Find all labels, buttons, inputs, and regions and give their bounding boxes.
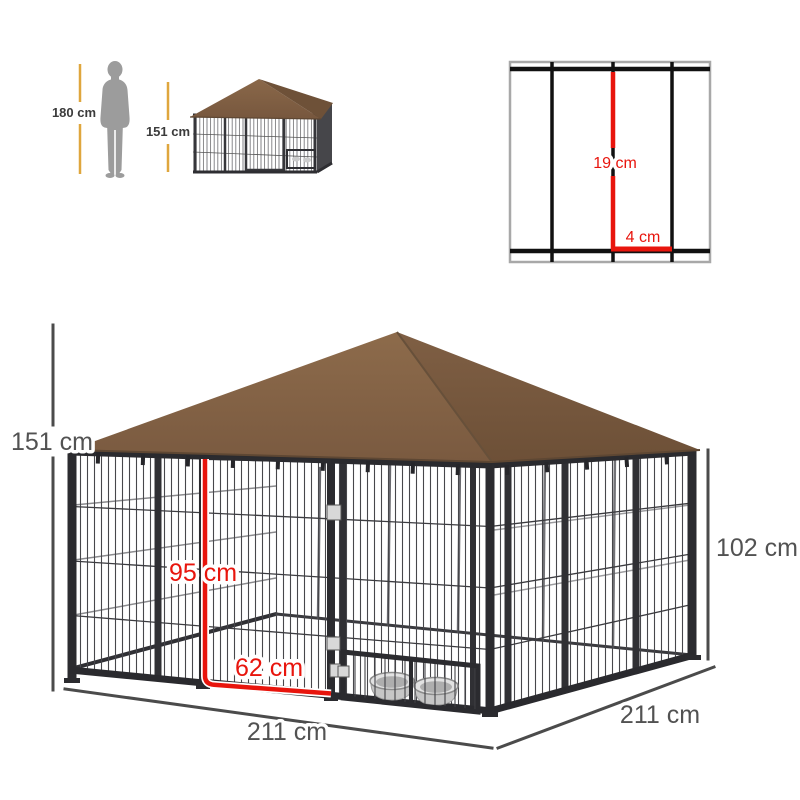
person-height-label: 180 cm — [52, 105, 96, 120]
feeder-hinge — [338, 666, 349, 677]
door-height-label: 95 cm — [169, 559, 237, 587]
person-silhouette-icon — [100, 61, 129, 178]
wall-height-label: 102 cm — [716, 534, 798, 562]
corner-foot — [64, 678, 80, 683]
mesh-vertical-spacing-label: 19 cm — [593, 155, 637, 172]
door-width-label: 62 cm — [235, 654, 303, 682]
front-width-label: 211 cm — [247, 718, 327, 746]
door-hinge — [327, 637, 340, 650]
kennel-thumbnail — [190, 79, 333, 172]
kennel-illustration: 95 cm 62 cm 151 cm 102 cm 211 cm 211 cm — [11, 325, 798, 748]
side-depth-label: 211 cm — [620, 701, 700, 729]
overall-height-label: 151 cm — [11, 428, 93, 456]
corner-foot — [482, 712, 498, 717]
thumbnail-height-label: 151 cm — [146, 124, 190, 139]
cage-right-face — [490, 450, 701, 711]
mesh-horizontal-spacing-label: 4 cm — [626, 229, 661, 246]
kennel-dimension-illustration: 95 cm 62 cm 151 cm 102 cm 211 cm 211 cm … — [0, 0, 800, 800]
scale-reference-group: 180 cm 151 cm — [52, 61, 333, 178]
product-dimension-diagram: 95 cm 62 cm 151 cm 102 cm 211 cm 211 cm … — [0, 0, 800, 800]
mesh-detail-panel: 19 cm 4 cm — [510, 62, 710, 262]
corner-foot — [685, 655, 701, 660]
roof-canopy — [70, 332, 700, 462]
door-hinge — [327, 505, 341, 520]
